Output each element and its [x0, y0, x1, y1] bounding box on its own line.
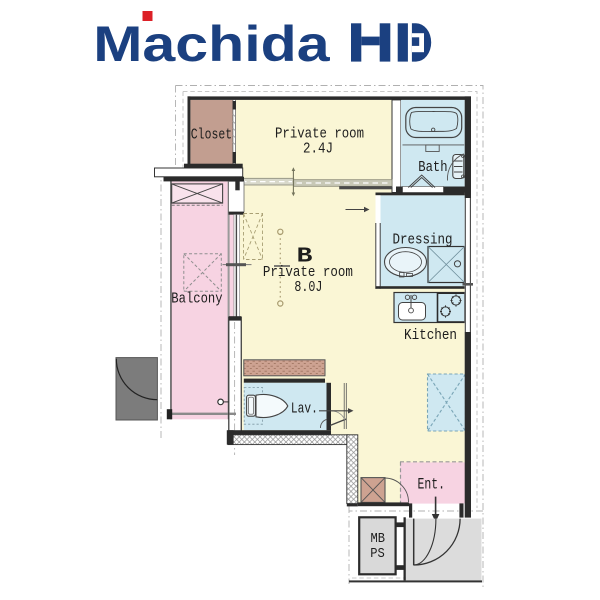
svg-text:Closet: Closet [191, 126, 232, 143]
svg-text:MB: MB [371, 532, 386, 547]
svg-text:Lav.: Lav. [291, 400, 318, 417]
svg-text:Machida: Machida [93, 15, 330, 72]
svg-text:PS: PS [370, 547, 385, 562]
svg-text:2.4J: 2.4J [303, 141, 333, 158]
svg-text:Dressing: Dressing [393, 232, 453, 249]
svg-text:Ent.: Ent. [418, 476, 446, 494]
svg-text:Balcony: Balcony [171, 290, 222, 307]
svg-text:Kitchen: Kitchen [404, 327, 457, 344]
svg-text:Bath: Bath [418, 159, 447, 176]
svg-text:8.0J: 8.0J [294, 279, 322, 296]
